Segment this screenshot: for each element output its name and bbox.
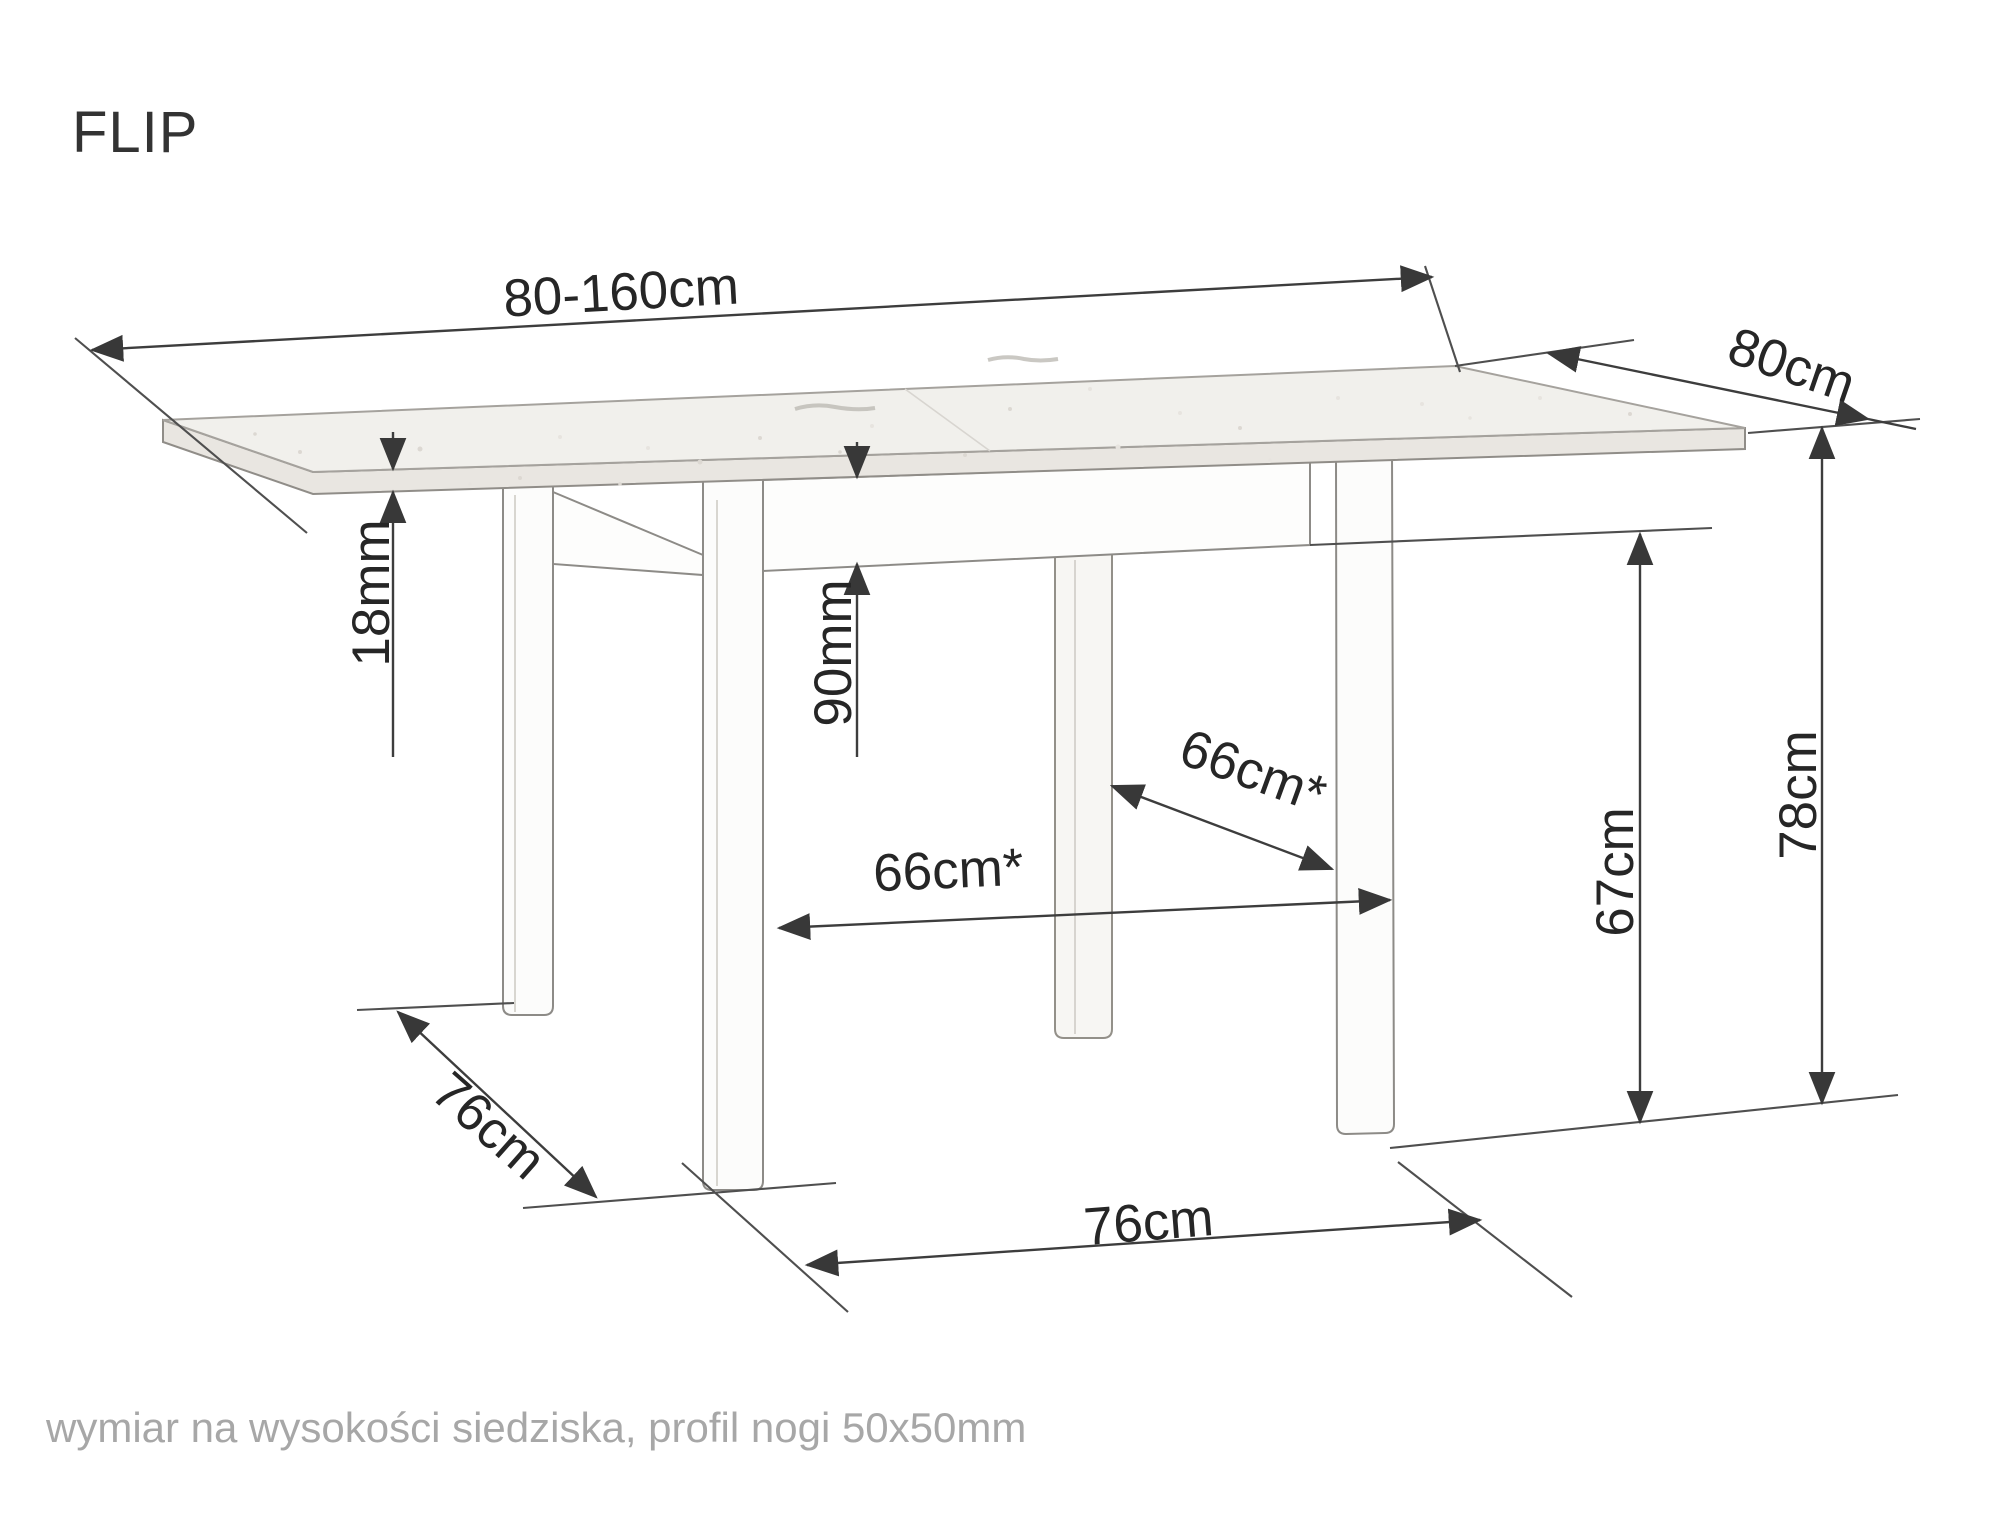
extension-rear-right-connector	[1425, 266, 1460, 372]
dimension-foot-span-length: 76cm	[807, 1188, 1480, 1265]
dim-label-foot-span-depth: 76cm	[421, 1061, 557, 1191]
dimension-foot-span-depth: 76cm	[398, 1012, 596, 1197]
extension-front-center-foot	[523, 1183, 836, 1208]
table-leg-rear-center	[1055, 538, 1112, 1038]
dim-line-length	[92, 277, 1432, 350]
dimension-inner-span-rear: 66cm*	[1112, 718, 1334, 869]
extension-rear-right-foot-diagonal	[1398, 1162, 1572, 1297]
extension-front-center-foot-diagonal	[682, 1163, 848, 1312]
dim-label-depth: 80cm	[1721, 316, 1863, 414]
apron-side-panel	[553, 492, 703, 575]
dim-label-inner-span-rear: 66cm*	[1172, 718, 1333, 825]
extension-rear-edge-right	[1455, 340, 1634, 366]
table-leg-rear-right	[1336, 450, 1394, 1134]
dimension-length: 80-160cm	[92, 256, 1432, 350]
dim-label-apron-height: 90mm	[804, 579, 863, 726]
wood-grain-mark	[988, 357, 1058, 360]
furniture-dimension-diagram: 80-160cm 80cm 18mm 90mm 66cm* 66cm* 67cm…	[0, 0, 2000, 1530]
table-drawing	[163, 357, 1745, 1190]
dimension-clearance-height: 67cm	[1586, 534, 1645, 1122]
footnote: wymiar na wysokości siedziska, profil no…	[45, 1404, 1026, 1451]
dim-label-thickness: 18mm	[342, 519, 401, 666]
dim-label-total-height: 78cm	[1769, 730, 1828, 860]
apron-front-panel	[763, 462, 1310, 571]
extension-front-right-corner	[1748, 419, 1920, 433]
dim-label-clearance: 67cm	[1586, 807, 1645, 937]
extension-front-left-foot	[357, 1003, 514, 1010]
dim-label-foot-span-length: 76cm	[1082, 1188, 1216, 1257]
table-leg-front-left	[503, 464, 553, 1015]
dim-label-inner-span-front: 66cm*	[872, 838, 1025, 903]
page-title: FLIP	[72, 100, 199, 165]
dimension-total-height: 78cm	[1769, 428, 1828, 1103]
table-leg-front-center	[703, 472, 763, 1190]
